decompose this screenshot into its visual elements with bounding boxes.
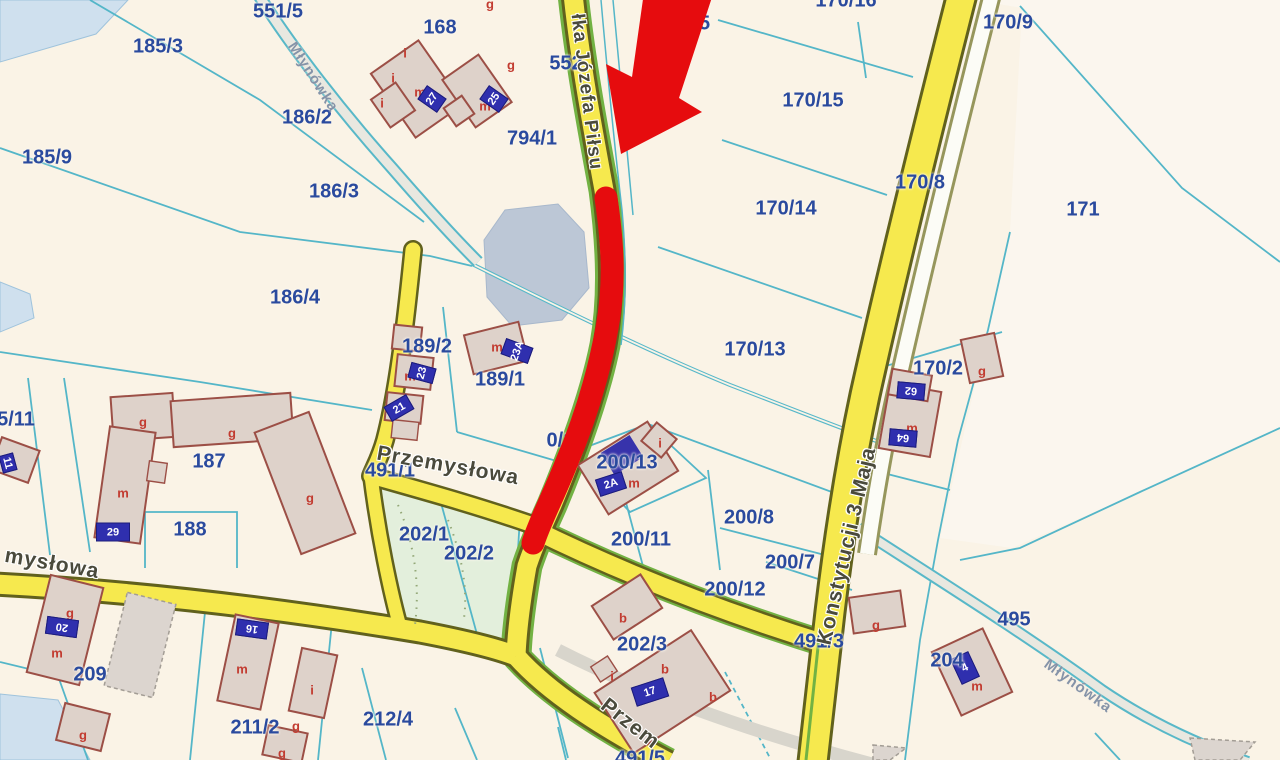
cadastral-map[interactable]: iiimgmgmmmiggmggmgmiggbbbimggm272523A232… [0,0,1280,760]
stream-mlynowka-nw [258,0,478,262]
parcel-fill-east [940,0,1280,548]
pond [484,204,589,326]
stream-mlynowka-se [858,528,1248,760]
map-base-graphics [0,0,1280,760]
